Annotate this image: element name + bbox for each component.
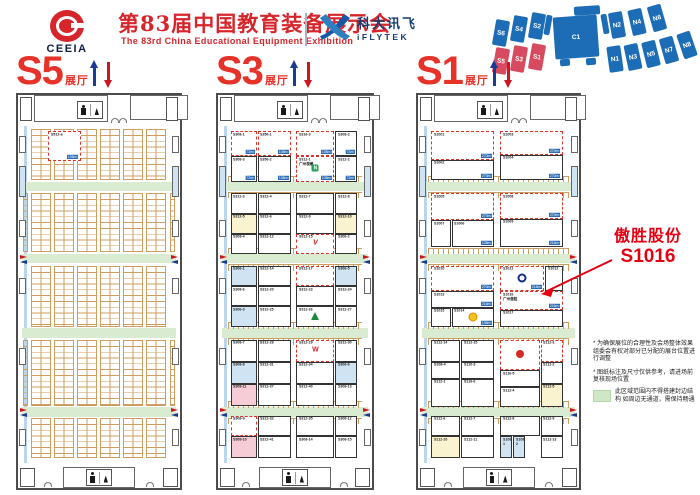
booth-S1003: S1003270m² xyxy=(500,131,563,155)
hall-s1-subtitle: 展厅 xyxy=(465,75,489,87)
sun-logo-icon xyxy=(468,312,477,321)
standard-booth-grid xyxy=(123,193,143,252)
restroom-icon xyxy=(277,101,303,119)
wall-room xyxy=(172,136,179,153)
booth-S312-24: S312-24 xyxy=(335,286,357,306)
booth-S112-8: S112-8 xyxy=(500,416,540,436)
wall-room xyxy=(364,348,371,365)
side-arrow-red-icon xyxy=(570,408,577,412)
booth-S312-10: S312-10 xyxy=(335,214,357,234)
side-entry-arrows xyxy=(220,408,227,417)
entry-in-arrow-icon xyxy=(490,60,499,88)
wall-room xyxy=(364,278,371,295)
v-logo-icon: V xyxy=(313,240,318,247)
standard-booth-grid xyxy=(100,340,120,406)
booth-S312-20: S312-20 xyxy=(258,286,292,306)
standard-booth-grid xyxy=(31,266,51,327)
booth-S312-23: S312-23 xyxy=(296,286,334,306)
green-aisle xyxy=(422,182,575,191)
side-arrow-blue-icon xyxy=(171,260,178,264)
booth-S1017: S1017 xyxy=(500,310,563,327)
booth-S1014: S1014108m² xyxy=(452,308,494,327)
tree-logo-icon xyxy=(311,312,319,320)
wall-room xyxy=(419,136,426,153)
side-entry-arrows xyxy=(20,408,27,417)
booth-S1007: S1007 xyxy=(431,220,451,247)
standard-booth-grid xyxy=(123,340,143,406)
side-entry-arrows xyxy=(570,408,577,417)
standard-booth-grid xyxy=(123,418,143,458)
wall-room xyxy=(219,429,226,446)
standard-booth-grid xyxy=(54,340,74,406)
side-arrow-blue-icon xyxy=(420,413,427,417)
iflytek-name-cn: 科大讯飞 xyxy=(357,13,417,32)
booth-S308-1: S308-172m² xyxy=(231,131,257,156)
wall-room xyxy=(219,220,226,237)
booth-S312-26: S312-26 xyxy=(296,306,334,326)
minimap-block-N3: N3 xyxy=(623,43,642,71)
wall-room xyxy=(364,136,371,153)
wall-room xyxy=(571,136,578,153)
stall-row xyxy=(428,248,569,254)
hall-s3-subtitle: 展厅 xyxy=(265,75,289,87)
entrance-arrows xyxy=(490,60,513,88)
side-arrow-blue-icon xyxy=(570,413,577,417)
side-arrow-blue-icon xyxy=(220,413,227,417)
side-entry-arrows xyxy=(363,255,370,264)
entry-in-arrow-icon xyxy=(290,60,299,88)
highlight-callout: 傲胜股份 S1016 xyxy=(600,222,696,268)
side-arrow-blue-icon xyxy=(570,260,577,264)
booth-S306-2: S306-2 xyxy=(335,234,357,254)
booth-S108-2: S108-2 xyxy=(513,436,525,458)
booth-S112-5: S112-5 xyxy=(541,384,563,408)
restroom-icon xyxy=(86,469,112,486)
side-entry-arrows xyxy=(363,408,370,417)
hall-s1: S1展厅 S1001270m²S1002270m²S1003270m²S1004… xyxy=(416,58,581,490)
callout-booth-number: S1016 xyxy=(600,246,696,268)
legend-text: 此区域范围内不得搭建封边结构 如周边无通道，需保持畅通 xyxy=(615,389,698,404)
side-arrow-red-icon xyxy=(20,255,27,259)
entrance-arrows xyxy=(290,60,313,88)
minimap-structure xyxy=(586,58,596,66)
top-wall xyxy=(418,95,579,125)
side-entry-arrows xyxy=(420,255,427,264)
entry-in-arrow-icon xyxy=(90,60,99,88)
wall-room xyxy=(172,220,179,237)
wall-room xyxy=(364,220,371,237)
minimap-block-N7: N7 xyxy=(659,36,680,65)
booth-S306-5: S306-5 xyxy=(335,266,357,286)
side-arrow-blue-icon xyxy=(220,260,227,264)
footnotes: * 为确保展位的合理性及会场整体效果 组委会有权对部分已分配的展台位置进行调整 … xyxy=(593,341,698,391)
hall-s3-floorplan: S308-172m²S356-1108m²S316-3108m²S308-272… xyxy=(216,93,374,490)
wall-room xyxy=(19,136,26,153)
w-logo-icon: W xyxy=(312,347,319,354)
callout-company: 傲胜股份 xyxy=(600,222,696,246)
side-arrow-red-icon xyxy=(363,255,370,259)
standard-booth-grid xyxy=(77,340,97,406)
wall-room xyxy=(19,278,26,295)
standard-booth-grid xyxy=(100,418,120,458)
booth-S308-15: S308-15 xyxy=(335,436,357,458)
wall-room xyxy=(419,278,426,295)
side-arrow-red-icon xyxy=(420,255,427,259)
booth-S308-12: S308-12 xyxy=(335,416,357,436)
booth-S116-5: S116-5 xyxy=(500,370,540,387)
entry-out-arrow-icon xyxy=(104,60,113,88)
wall-room xyxy=(172,348,179,365)
minimap-block-N8: N8 xyxy=(676,30,698,59)
green-aisle xyxy=(222,182,368,191)
top-wall xyxy=(218,95,372,125)
wall-room xyxy=(571,278,578,295)
wall-room xyxy=(19,429,26,446)
restroom-icon xyxy=(282,469,308,486)
booth-S312-28: S312-28 xyxy=(258,340,292,362)
booth-S306-1: S306-1 xyxy=(231,266,257,286)
side-entry-arrows xyxy=(171,408,178,417)
booth-S312-41: S312-41 xyxy=(258,436,292,458)
entrance-arrows xyxy=(90,60,113,88)
standard-booth-grid xyxy=(146,418,166,458)
wall-room xyxy=(364,429,371,446)
booth-S312-37: S312-37 xyxy=(258,384,292,406)
booth-S112-11: S112-11 xyxy=(461,436,494,458)
standard-booth-grid xyxy=(100,266,120,327)
side-entry-arrows xyxy=(20,255,27,264)
minimap-block-N2: N2 xyxy=(608,11,626,39)
booth-S308-8: S308-8 xyxy=(231,362,257,384)
booth-S316-3: S316-3108m² xyxy=(296,131,334,156)
red-logo-icon xyxy=(516,350,524,358)
booth-S312-2: S312-272m² xyxy=(335,156,357,181)
wall-room xyxy=(364,166,371,196)
booth-S312-27: S312-27 xyxy=(335,306,357,326)
booth-S312-7: S312-7 xyxy=(296,193,334,213)
standard-booth-grid xyxy=(54,193,74,252)
side-arrow-blue-icon xyxy=(171,413,178,417)
booth-S112-9: S112-9 xyxy=(541,416,563,436)
side-arrow-red-icon xyxy=(220,408,227,412)
wall-room xyxy=(172,166,179,196)
booth-S110-3: S110-3 xyxy=(461,362,494,379)
booth-S1012: S1012 xyxy=(545,266,563,291)
iflytek-logo: 科大讯飞 iFLYTEK xyxy=(318,12,417,42)
hall-s5-floorplan: S512-a108m² xyxy=(16,93,182,490)
booth-S1013: S1013216m² xyxy=(431,291,494,308)
booth-S308-9: S308-9 xyxy=(231,416,257,436)
side-arrow-red-icon xyxy=(171,255,178,259)
entry-out-arrow-icon xyxy=(504,60,513,88)
standard-booth-grid xyxy=(31,193,51,252)
standard-booth-grid xyxy=(54,418,74,458)
booth-S356-1: S356-1108m² xyxy=(258,131,292,156)
booth-S112-1: S112-1 xyxy=(431,379,460,408)
booth-S356-2: S356-2108m² xyxy=(258,156,292,181)
booth-S312-29: S312-29W xyxy=(296,340,334,362)
bottom-wall xyxy=(418,463,579,488)
booth-S308-11: S308-11 xyxy=(231,384,257,406)
booth-S112-3: S112-3 xyxy=(541,340,563,362)
booth-S308-10: S308-10 xyxy=(231,436,257,458)
side-entry-arrows xyxy=(570,255,577,264)
iflytek-swoosh-icon xyxy=(318,12,352,42)
side-arrow-red-icon xyxy=(570,255,577,259)
standard-booth-grid xyxy=(146,266,166,327)
side-arrow-blue-icon xyxy=(363,413,370,417)
aisle-legend: 此区域范围内不得搭建封边结构 如周边无通道，需保持畅通 xyxy=(593,389,698,404)
entry-out-arrow-icon xyxy=(304,60,313,88)
booth-S306-6: S306-6 xyxy=(335,362,357,384)
minimap-block-N5: N5 xyxy=(641,40,661,69)
booth-S312-4: S312-4 xyxy=(258,193,292,213)
standard-booth-grid xyxy=(146,340,166,406)
side-entry-arrows xyxy=(420,408,427,417)
booth-S312-40: S312-40 xyxy=(296,384,334,406)
booth-S112-6: S112-6 xyxy=(431,416,460,436)
wall-room xyxy=(172,278,179,295)
booth-S312-25: S312-25 xyxy=(258,306,292,326)
ceeia-mark-icon xyxy=(50,10,84,42)
bottom-wall xyxy=(218,463,372,488)
side-arrow-blue-icon xyxy=(363,260,370,264)
booth-S308-3: S308-372m² xyxy=(231,156,257,181)
booth-S312-17: S312-17 xyxy=(296,266,334,286)
booth-S312-31: S312-31 xyxy=(258,362,292,384)
booth-S1002: S1002270m² xyxy=(431,160,494,180)
standard-booth-grid xyxy=(146,193,166,252)
booth-S308-7: S308-7 xyxy=(231,340,257,362)
booth-S112-15: S112-15 xyxy=(461,340,494,362)
side-arrow-blue-icon xyxy=(420,260,427,264)
green-aisle xyxy=(22,407,176,416)
wall-room xyxy=(571,348,578,365)
booth-S312-14: S312-14 xyxy=(258,266,292,286)
booth-S312-9: S312-9 xyxy=(296,214,334,234)
green-aisle xyxy=(22,328,176,337)
booth-S306-3: S306-3 xyxy=(231,306,257,326)
hall-s5-subtitle: 展厅 xyxy=(65,75,89,87)
wall-room xyxy=(219,348,226,365)
booth-S108-1: S108-1 xyxy=(500,436,512,458)
booth-S108-4: S108-4 xyxy=(431,362,460,379)
booth-S1009: S1009216m² xyxy=(500,219,563,248)
booth-S112-14: S112-14 xyxy=(431,340,460,362)
wall-room xyxy=(571,429,578,446)
booth-S112-10: S112-10 xyxy=(431,436,460,458)
booth-S1015: S1015 xyxy=(431,308,451,327)
side-arrow-blue-icon xyxy=(20,260,27,264)
booth-S112-2: S112-2 xyxy=(541,362,563,384)
booth-S312-3: S312-3 xyxy=(231,193,257,213)
standard-booth-grid xyxy=(123,266,143,327)
iflytek-name-en: iFLYTEK xyxy=(357,32,417,42)
wall-room xyxy=(219,136,226,153)
booth-S1016: S1016 广州傲胜216m² xyxy=(500,291,563,310)
bottom-wall xyxy=(18,463,180,488)
side-arrow-red-icon xyxy=(420,408,427,412)
hall-s3: S3展厅 S308-172m²S356-1108m²S316-3108m²S30… xyxy=(216,58,374,490)
wall-room xyxy=(419,429,426,446)
side-arrow-red-icon xyxy=(171,408,178,412)
standard-booth-grid xyxy=(146,129,166,180)
footnote-1: * 为确保展位的合理性及会场整体效果 组委会有权对部分已分配的展台位置进行调整 xyxy=(593,341,698,364)
hall-s1-floorplan: S1001270m²S1002270m²S1003270m²S1004270m²… xyxy=(416,93,581,490)
standard-booth-grid xyxy=(77,266,97,327)
booth-S512-a: S512-a108m² xyxy=(48,131,80,161)
green-aisle xyxy=(22,254,176,263)
standard-booth-grid xyxy=(100,193,120,252)
hall-s5: S5展厅 S512-a108m² xyxy=(16,58,182,490)
booth-S312-35: S312-35 xyxy=(296,416,334,436)
wall-room xyxy=(419,166,426,196)
standard-booth-grid xyxy=(31,340,51,406)
standard-booth-grid xyxy=(100,129,120,180)
booth-S308-2: S308-272m² xyxy=(335,131,357,156)
minimap-block-S6: S6 xyxy=(492,19,510,47)
booth-S1006: S1006108m² xyxy=(452,220,494,247)
standard-booth-grid xyxy=(31,418,51,458)
minimap-block-S2: S2 xyxy=(528,12,546,40)
side-arrow-red-icon xyxy=(363,408,370,412)
wall-room xyxy=(219,278,226,295)
booth-S1001: S1001270m² xyxy=(431,131,494,160)
wall-room xyxy=(19,166,26,196)
standard-booth-grid xyxy=(123,129,143,180)
wall-room xyxy=(19,220,26,237)
minimap-block-C1: C1 xyxy=(553,15,600,60)
side-arrow-red-icon xyxy=(20,408,27,412)
standard-booth-grid xyxy=(54,266,74,327)
side-entry-arrows xyxy=(220,255,227,264)
minimap-block-N6: N6 xyxy=(647,4,668,33)
green-aisle xyxy=(22,182,176,191)
booth-S312-30: S312-30 xyxy=(335,340,357,362)
booth-S1011: S1011216m² xyxy=(500,266,544,291)
booth-S1008: S1008270m² xyxy=(500,193,563,218)
restroom-icon xyxy=(477,101,503,119)
side-arrow-red-icon xyxy=(220,255,227,259)
booth-S112-4: S112-4 xyxy=(500,387,540,407)
side-arrow-blue-icon xyxy=(20,413,27,417)
booth-S312-12: S312-12 xyxy=(258,234,292,254)
green-aisle xyxy=(422,328,575,337)
ring-logo-icon xyxy=(518,273,527,282)
booth-logo xyxy=(500,340,540,370)
booth-S312-34: S312-34 xyxy=(296,362,334,384)
wall-room xyxy=(571,220,578,237)
wall-room xyxy=(19,348,26,365)
booth-S312-32: S312-32 xyxy=(258,416,292,436)
green-aisle xyxy=(422,254,575,263)
booth-S116-6: S116-6 xyxy=(461,379,494,408)
booth-S1004: S1004270m² xyxy=(500,155,563,180)
booth-S1010: S1010270m² xyxy=(431,266,494,291)
standard-booth-grid xyxy=(77,193,97,252)
booth-S112-7: S112-7 xyxy=(461,416,494,436)
booth-S312-15: S312-15V xyxy=(296,234,334,254)
wall-room xyxy=(419,348,426,365)
seewo-logo-icon: N xyxy=(312,165,319,172)
booth-S1005: S1005270m² xyxy=(431,193,494,220)
restroom-icon xyxy=(77,101,103,119)
footnote-2: * 图纸标注及尺寸仅供参考，请进场前复核现场位置 xyxy=(593,370,698,385)
wall-room xyxy=(172,429,179,446)
header-divider xyxy=(305,13,307,46)
minimap-block-N1: N1 xyxy=(606,45,623,73)
minimap-block-N4: N4 xyxy=(627,8,646,36)
side-entry-arrows xyxy=(171,255,178,264)
minimap-block-S4: S4 xyxy=(510,15,528,43)
top-wall xyxy=(18,95,180,125)
wall-room xyxy=(571,166,578,196)
wall-room xyxy=(419,220,426,237)
booth-S308-14: S308-14 xyxy=(296,436,334,458)
restroom-icon xyxy=(486,469,512,486)
booth-S312-6: S312-6 xyxy=(258,214,292,234)
booth-S112-13: S112-13 xyxy=(541,436,563,458)
green-aisle xyxy=(222,328,368,337)
green-aisle xyxy=(222,254,368,263)
wall-room xyxy=(219,166,226,196)
standard-booth-grid xyxy=(77,418,97,458)
booth-S312-8: S312-8 xyxy=(335,193,357,213)
booth-S308-4: S308-4 xyxy=(231,234,257,254)
booth-S312-1: S312-1 广州视睿N108m² xyxy=(296,156,334,181)
booth-S308-13: S308-13 xyxy=(335,384,357,406)
legend-green-swatch xyxy=(593,390,611,402)
booth-S312-5: S312-5 xyxy=(231,214,257,234)
booth-S308-6: S308-6 xyxy=(231,286,257,306)
